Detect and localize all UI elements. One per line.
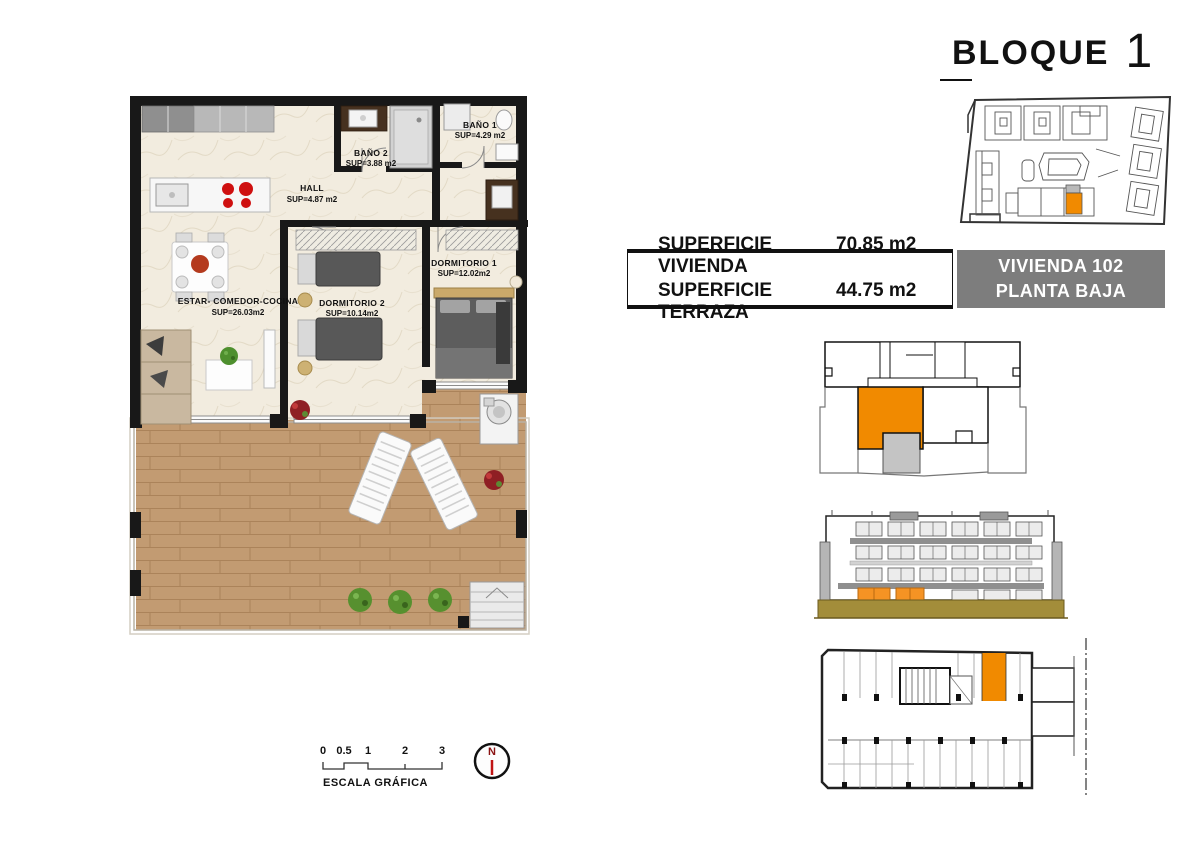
page-title: BLOQUE1 (952, 24, 1182, 79)
surface-terraza-label: SUPERFICIE TERRAZA (658, 280, 836, 324)
site-unit-highlight (1066, 193, 1082, 214)
label-dormitorio1: DORMITORIO 1 (431, 258, 497, 268)
scale-rule (323, 762, 442, 769)
label-dormitorio2: DORMITORIO 2 (319, 298, 385, 308)
site-terrace-gray (1066, 185, 1080, 193)
compass-north-label: N (488, 746, 496, 758)
compass: N (470, 738, 514, 788)
surface-vivienda-value: 70.85 m2 (836, 234, 936, 278)
key-terrace-gray (883, 433, 920, 473)
tv-bench (264, 330, 275, 388)
dining-table (172, 233, 228, 301)
surface-terraza-value: 44.75 m2 (836, 280, 936, 324)
scale-tick-3: 3 (439, 745, 445, 757)
surface-row-terraza: SUPERFICIE TERRAZA 44.75 m2 (628, 280, 952, 324)
area-dormitorio1: SUP=12.02m2 (438, 269, 491, 278)
elevation-base (818, 600, 1064, 618)
area-hall: SUP=4.87 m2 (287, 195, 338, 204)
label-bano2: BAÑO 2 (354, 148, 388, 158)
scale-tick-1: 1 (365, 745, 371, 757)
scale-tick-2: 2 (402, 745, 408, 757)
scale-ticks: 0 0.5 1 2 3 (320, 745, 445, 757)
garage-unit-highlight (982, 653, 1006, 701)
garage-plan (814, 636, 1106, 798)
title-underline (940, 79, 972, 81)
terrace-steps (470, 582, 524, 628)
scale-label: ESCALA GRÁFICA (323, 776, 428, 789)
label-hall: HALL (300, 183, 324, 193)
sofa (141, 330, 191, 424)
area-bano2: SUP=3.88 m2 (346, 159, 397, 168)
scale-tick-0: 0 (320, 745, 326, 757)
area-dormitorio2: SUP=10.14m2 (326, 309, 379, 318)
area-estar: SUP=26.03m2 (212, 308, 265, 317)
area-bano1: SUP=4.29 m2 (455, 131, 506, 140)
label-bano1: BAÑO 1 (463, 120, 497, 130)
surface-row-vivienda: SUPERFICIE VIVIENDA 70.85 m2 (628, 234, 952, 278)
unit-number: VIVIENDA 102 (998, 254, 1123, 279)
unit-identifier-box: VIVIENDA 102 PLANTA BAJA (957, 250, 1165, 308)
floor-key-plan (816, 332, 1032, 478)
unit-floor: PLANTA BAJA (996, 279, 1127, 304)
surface-vivienda-label: SUPERFICIE VIVIENDA (658, 234, 836, 278)
title-bloque: BLOQUE (952, 34, 1109, 72)
site-key-plan (948, 93, 1198, 235)
title-number: 1 (1125, 25, 1152, 78)
surface-table: SUPERFICIE VIVIENDA 70.85 m2 SUPERFICIE … (627, 249, 953, 309)
scale-bar: 0 0.5 1 2 3 ESCALA GRÁFICA (316, 742, 466, 794)
apartment-floor-plan: BAÑO 2 SUP=3.88 m2 BAÑO 1 SUP=4.29 m2 HA… (128, 92, 532, 640)
building-elevation (812, 508, 1070, 630)
scale-tick-05: 0.5 (336, 745, 351, 757)
entry-cabinet (486, 180, 518, 220)
label-estar: ESTAR- COMEDOR-COCINA (178, 296, 298, 306)
